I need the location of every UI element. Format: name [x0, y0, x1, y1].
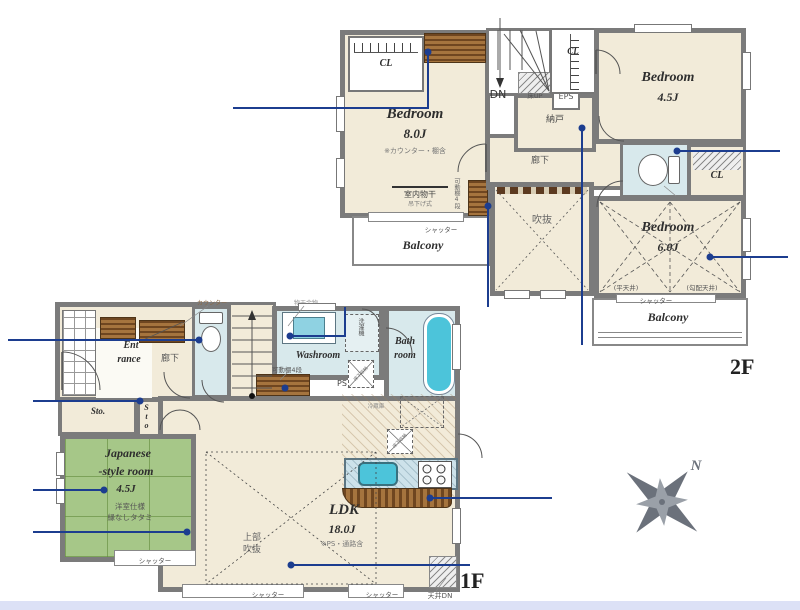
shelf-bedroom8 — [424, 33, 486, 63]
void-2f-label: 吹抜 — [532, 211, 552, 226]
window — [742, 52, 751, 90]
hanger-rod-icon — [693, 150, 741, 170]
movable-shelf-label-1f: 可動棚4段 — [272, 364, 302, 374]
flat-ceiling-label: (平天井) — [614, 282, 639, 292]
shutter-label: シャッター — [139, 555, 172, 565]
hallway-2f-label: 廊下 — [531, 153, 549, 166]
toilet-bowl-icon — [638, 154, 668, 186]
void-above-label-2: 吹抜 — [243, 542, 261, 555]
floor-up-label: 床UP — [527, 90, 542, 100]
sloped-ceiling-label: (勾配天井) — [686, 282, 717, 292]
shutter-sill — [182, 584, 304, 598]
entrance-counter-shelf — [139, 320, 185, 343]
window — [634, 24, 692, 33]
japanese-room-label-1: Japanese — [105, 446, 151, 461]
void-2f — [490, 182, 594, 296]
bathtub-icon — [424, 314, 454, 394]
ceiling-down-label: 天井DN — [428, 591, 453, 601]
floor-label-2f: 2F — [730, 354, 754, 380]
ldk-note: ※PS・通路含 — [321, 539, 364, 549]
closet-label: CL — [380, 58, 393, 69]
window — [540, 290, 566, 299]
window — [56, 452, 65, 476]
balcony-right-label: Balcony — [648, 310, 689, 325]
window — [298, 303, 336, 311]
floorplan-canvas: CL 可動棚4段 Bedroom 8.0J ※カウンター・棚含 室内物干 吊下げ… — [0, 0, 800, 610]
window — [336, 158, 345, 188]
bedroom8-size: 8.0J — [404, 126, 427, 142]
window — [504, 290, 530, 299]
bedroom45-size: 4.5J — [658, 90, 679, 105]
japanese-room-size: 4.5J — [116, 483, 135, 495]
window — [56, 478, 65, 504]
kitchen-sink-icon — [358, 462, 398, 486]
compass-icon — [601, 442, 723, 562]
shoe-cabinet — [62, 310, 96, 396]
room-bedroom-45j — [594, 28, 746, 144]
toilet-tank-icon — [668, 156, 680, 184]
shutter-label: シャッター — [640, 295, 673, 305]
closet-hall-2f — [550, 28, 596, 94]
balcony-left-label: Balcony — [403, 238, 444, 253]
vanity-sink-icon — [293, 317, 325, 339]
japanese-room-note-1: 洋室仕様 — [115, 501, 145, 512]
bedroom45-name: Bedroom — [642, 70, 695, 86]
entrance-shelf — [100, 317, 136, 339]
japanese-room-note-2: 縁なしタタミ — [108, 512, 153, 523]
drying-bar-icon — [392, 186, 448, 188]
bottom-strip — [0, 601, 800, 610]
bedroom8-name: Bedroom — [387, 106, 444, 123]
hanger-rod-icon — [570, 34, 579, 90]
storage1-label: Sto. — [91, 406, 105, 416]
movable-shelf-label-2f: 可動棚4段 — [452, 178, 461, 209]
fridge-label: 冷蔵庫 — [368, 402, 385, 410]
ceiling-down-hatch — [429, 556, 457, 588]
indoor-drying-sub: 吊下げ式 — [408, 199, 432, 208]
ps-label: PS — [337, 379, 347, 388]
stairs-dn-label: DN — [490, 88, 507, 101]
washroom-label: Washroom — [296, 350, 340, 361]
japanese-room-label-2: -style room — [99, 464, 154, 479]
vanity-counter — [282, 312, 336, 344]
stove-icon — [418, 461, 452, 488]
nando-label: 納戸 — [546, 112, 564, 125]
hallway-1f-label: 廊下 — [161, 351, 179, 364]
toilet-bowl-icon — [201, 326, 221, 352]
window — [452, 324, 461, 370]
ldk-label: LDK — [329, 502, 359, 519]
ldk-size: 18.0J — [329, 522, 356, 537]
floor-label-1f: 1F — [460, 568, 484, 594]
shutter-label: シャッター — [252, 589, 285, 599]
compass-north-label: N — [691, 458, 702, 475]
shelf-movable-1f — [256, 374, 310, 396]
shutter-label: シャッター — [366, 589, 399, 599]
railing-icon — [497, 187, 587, 194]
bedroom6-size: 6.0J — [658, 240, 679, 255]
shutter-label: シャッター — [425, 224, 458, 234]
window — [742, 218, 751, 252]
window — [336, 96, 345, 132]
washer-label: 洗濯機 — [356, 318, 365, 336]
railing-icon — [598, 332, 742, 338]
bedroom6-name: Bedroom — [642, 220, 695, 236]
bathroom-label-1: Bath — [395, 336, 415, 347]
toilet-tank-icon — [199, 312, 223, 324]
shelf-movable-2f — [468, 180, 488, 216]
window — [742, 256, 751, 280]
room-storage-1 — [58, 398, 138, 436]
fridge-space — [400, 396, 444, 428]
window — [452, 508, 461, 544]
shutter-sill — [368, 212, 464, 222]
entrance-label-1: Ent — [123, 340, 138, 351]
bedroom8-note: ※カウンター・棚含 — [384, 146, 446, 156]
closet-label: CL — [567, 46, 579, 56]
closet-label: CL — [711, 170, 724, 181]
bathroom-label-2: room — [394, 350, 416, 361]
hanger-rod-icon — [354, 43, 418, 53]
entrance-label-2: rance — [117, 354, 140, 365]
